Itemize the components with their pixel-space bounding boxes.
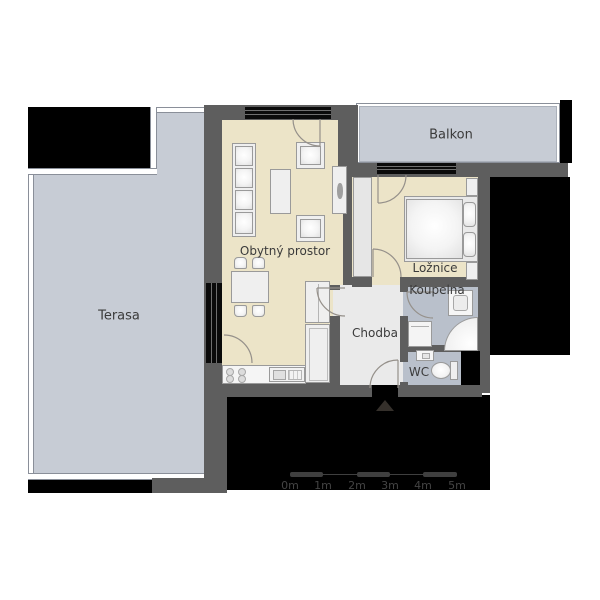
terrace-label: Terasa (98, 309, 140, 324)
wc-label: WC (409, 365, 429, 379)
door-living-balcony (293, 119, 320, 146)
door-bedroom-balcony (378, 175, 406, 203)
door-bedroom-entry (373, 249, 401, 277)
door-entrance (370, 360, 398, 388)
floor-plan: Terasa Balkon Obytný prostor Ložnice Kou… (0, 0, 600, 600)
living-room-label: Obytný prostor (240, 244, 330, 258)
bathroom-label: Koupelna (409, 283, 465, 297)
door-arcs (0, 0, 600, 600)
entrance-arrow (376, 400, 394, 411)
door-living-hall (317, 288, 345, 316)
hallway-label: Chodba (352, 326, 398, 340)
door-living-terrace (224, 335, 252, 363)
bedroom-label: Ložnice (412, 261, 457, 275)
balcony-label: Balkon (429, 128, 473, 143)
